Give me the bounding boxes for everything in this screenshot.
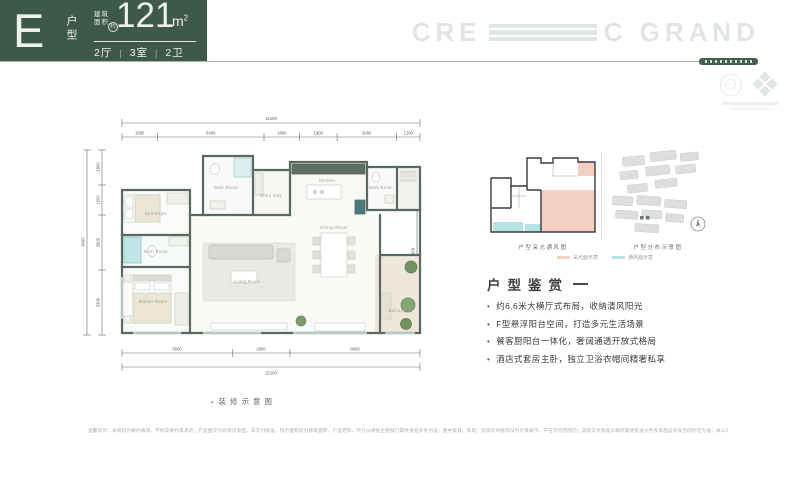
appreciation-bullets: 约6.6米大横厅式布局，收纳清风阳光 F型悬浮阳台空间，打造多元生活场景 餐客厨… (487, 298, 755, 368)
diagram2-caption: 户型分布示意图 (606, 243, 710, 251)
svg-text:6600: 6600 (350, 347, 360, 352)
svg-text:5600: 5600 (172, 347, 182, 352)
unit-header: E 户型 建筑 面积 约 121 m2 2厅 | 3室 | 2卫 (0, 0, 207, 62)
room-label: Entry Way (260, 193, 282, 198)
poster-canvas: E 户型 建筑 面积 约 121 m2 2厅 | 3室 | 2卫 CRE C G… (0, 0, 800, 477)
svg-text:2800: 2800 (96, 237, 101, 247)
bullet-item: 餐客厨阳台一体化，奢阔通透开放式格局 (487, 333, 755, 351)
room-label: Bath Room (214, 185, 238, 190)
header-rule-badge (699, 58, 758, 65)
svg-text:1800: 1800 (96, 162, 101, 172)
disclaimer-text: 温馨提示：本资料为要约邀请，不构成要约或承诺；户型图仅为装修示意图，非交付标准，… (88, 428, 728, 434)
brand-logo: CRE C GRAND (412, 17, 760, 48)
room-label: Kitchen (319, 178, 335, 183)
dim-bottom-total: 15100 (265, 371, 277, 376)
floor-plan: 15100 1800 5400 1800 1900 3000 1200 5600… (75, 105, 440, 390)
header-divider (94, 41, 196, 42)
unit-type-label: 户型 (63, 15, 79, 43)
compass-logo-icon (754, 73, 776, 95)
spec-baths: 2卫 (165, 45, 183, 60)
panel-divider (601, 152, 602, 240)
compass-icon (691, 217, 705, 231)
appreciation-title: 户型鉴赏 (487, 274, 588, 294)
logo-bars-icon (489, 24, 597, 41)
svg-text:3000: 3000 (362, 131, 372, 136)
room-label: Bath Room (369, 185, 393, 190)
lighting-ventilation-diagram (483, 150, 603, 242)
diagram-legend: 采光面示意 通风面示意 (505, 254, 705, 261)
dim-top-total: 15100 (265, 116, 277, 121)
brand-watermark (714, 72, 792, 124)
svg-text:1800: 1800 (277, 131, 287, 136)
svg-text:3300: 3300 (96, 297, 101, 307)
room-label: Bed Room (145, 211, 167, 216)
svg-text:1900: 1900 (314, 131, 324, 136)
site-plan-diagram (606, 146, 710, 242)
diagram1-caption: 户型采光通风图 (483, 243, 603, 251)
svg-text:1500: 1500 (96, 195, 101, 205)
bullet-item: 酒店式套房主卧，独立卫浴衣帽间精奢私享 (487, 351, 755, 369)
room-label: Bath Room (144, 249, 168, 254)
svg-text:1200: 1200 (404, 131, 414, 136)
unit-spec: 2厅 | 3室 | 2卫 (94, 45, 184, 60)
floorplan-caption: ▲装修示意图 (163, 396, 323, 407)
spec-rooms: 3室 (130, 45, 148, 60)
room-label: Dining Room (320, 225, 348, 230)
room-label: Balcony (389, 308, 407, 313)
area-label: 建筑 面积 (94, 11, 109, 27)
dim-left-total: 9400 (81, 237, 86, 247)
spec-halls: 2厅 (94, 45, 112, 60)
unit-letter: E (13, 0, 44, 62)
svg-text:5400: 5400 (206, 131, 216, 136)
title-dash (573, 283, 588, 285)
bullet-item: F型悬浮阳台空间，打造多元生活场景 (487, 316, 755, 334)
svg-text:1800: 1800 (135, 131, 145, 136)
room-label: Living Room (234, 279, 261, 284)
area-unit: m2 (172, 13, 188, 29)
room-label: Master Room (139, 299, 168, 304)
triangle-marker-icon: ▲ (210, 399, 214, 404)
legend-lighting: 采光面示意 (557, 254, 598, 261)
area-value: 121 (116, 0, 174, 36)
legend-ventilation: 通风面示意 (612, 254, 653, 261)
bullet-item: 约6.6米大横厅式布局，收纳清风阳光 (487, 298, 755, 316)
seal-icon (720, 74, 742, 96)
header-rule (0, 61, 757, 62)
svg-text:2900: 2900 (256, 347, 266, 352)
